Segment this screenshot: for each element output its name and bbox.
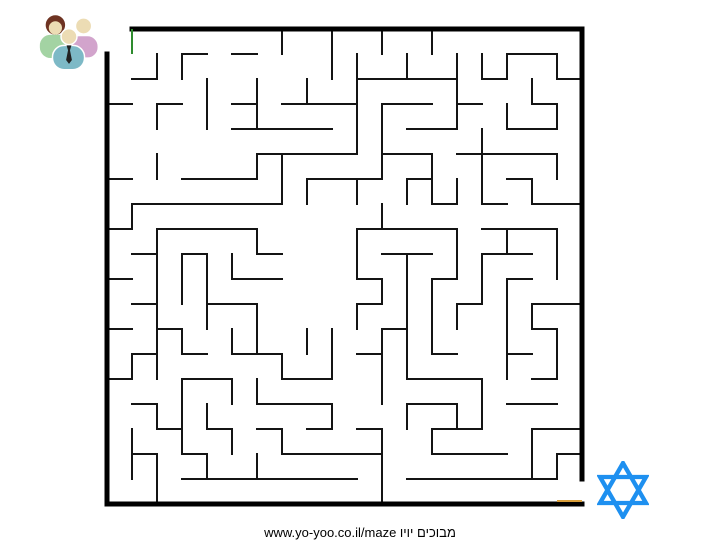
people-group-icon (35, 13, 103, 70)
right-person-head (76, 18, 92, 34)
star-down-triangle (600, 477, 646, 517)
footer-text: www.yo-yoo.co.il/maze מבוכים יויו (264, 525, 456, 540)
star-up-triangle (600, 463, 646, 503)
maze-worksheet-page: { "footer": { "text": "www.yo-yoo.co.il/… (0, 0, 720, 553)
footer-caption: www.yo-yoo.co.il/maze מבוכים יויו (0, 525, 720, 540)
front-person-head (61, 29, 77, 45)
star-of-david-icon (597, 461, 649, 519)
woman-face (49, 21, 62, 34)
